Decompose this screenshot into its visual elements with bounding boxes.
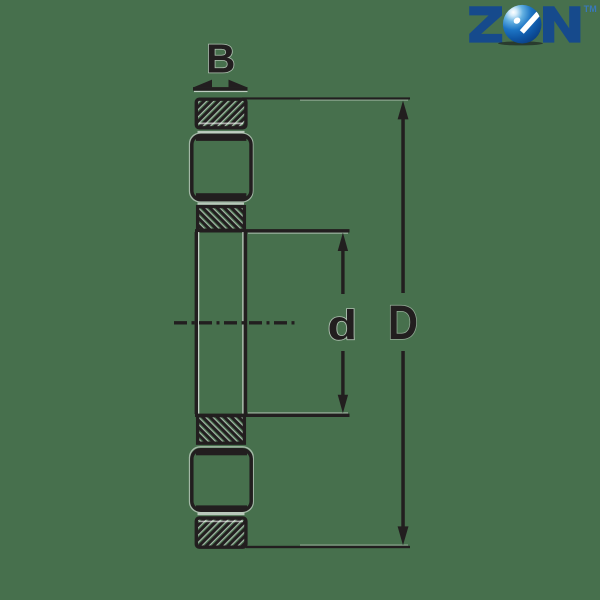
svg-text:D: D: [388, 295, 418, 350]
svg-text:d: d: [328, 301, 357, 348]
svg-text:TM: TM: [584, 4, 597, 14]
svg-text:B: B: [206, 35, 235, 81]
